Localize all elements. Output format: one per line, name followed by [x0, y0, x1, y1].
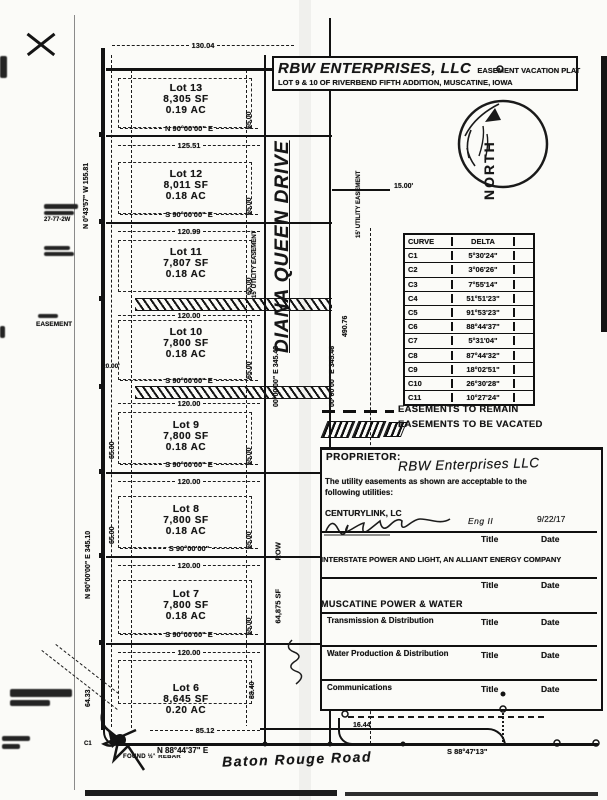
lot6-dimension: 85.12 — [150, 726, 260, 735]
lot6-bearing: N 88°44'37" E — [155, 746, 210, 755]
survey-point-markers — [0, 0, 607, 800]
plat-document-page: 130.04 Lot 13 8,305 SF 0.19 AC N 90°00'0… — [0, 0, 607, 800]
